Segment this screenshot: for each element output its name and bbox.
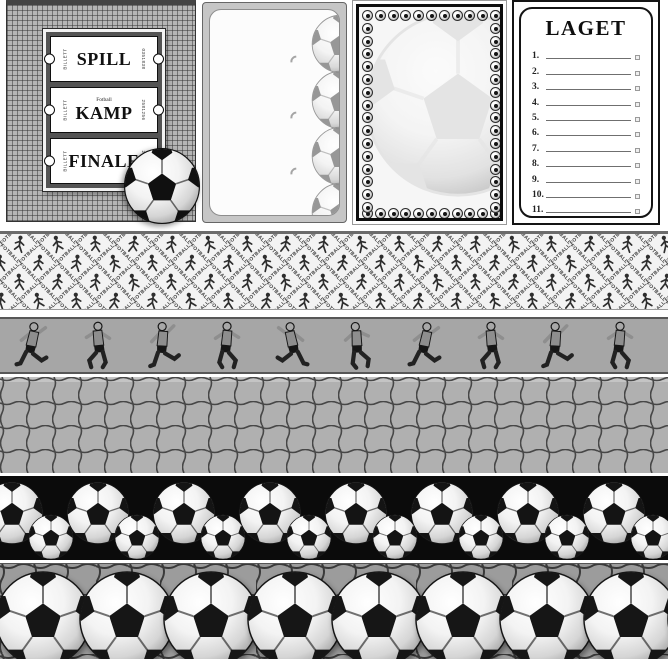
- lattice-player-icon: [295, 291, 312, 310]
- bead-icon: [362, 138, 373, 149]
- laget-row-line: [546, 183, 631, 198]
- soccer-ball-icon: [200, 514, 246, 560]
- soccer-ball-icon: [114, 514, 160, 560]
- edge-soccer-ball-icon: [311, 182, 340, 216]
- laget-row-line: [546, 106, 631, 121]
- soccer-player-icon: [529, 318, 582, 374]
- bead-icon: [362, 151, 373, 162]
- scrapbook-sheet: SPILLBILLETT0351838FotballKAMPBILLETT258…: [0, 0, 668, 659]
- soccer-player-icon: [136, 318, 189, 374]
- bead-icon: [490, 10, 501, 21]
- bead-icon: [362, 48, 373, 59]
- ticket-notch-left: [44, 156, 55, 167]
- ticket-label: SPILL: [77, 50, 132, 68]
- soccer-ball-icon: [544, 514, 590, 560]
- bead-icon: [426, 10, 437, 21]
- ticket-label: KAMP: [76, 104, 133, 122]
- bead-icon: [388, 10, 399, 21]
- lattice-player-icon: [68, 291, 85, 310]
- frame-card-inner: [356, 4, 503, 221]
- lattice-player-icon: [143, 291, 160, 310]
- panel-tickets: SPILLBILLETT0351838FotballKAMPBILLETT258…: [6, 0, 196, 222]
- journal-card-inner: [209, 9, 340, 216]
- bead-icon: [490, 151, 501, 162]
- panel-laget-card: LAGET 1.2.3.4.5.6.7.8.9.10.11.: [512, 0, 660, 225]
- soccer-player-icon: [8, 321, 54, 371]
- edge-soccer-ball-icon: [311, 70, 340, 130]
- soccer-ball-icon: [28, 514, 74, 560]
- ticket-serial-number: 0351838: [140, 48, 145, 69]
- strip-lattice: FOTBALLFOTBALLFOTBALLFOTBALLFOTBALLFOTBA…: [0, 231, 668, 310]
- panel-frame-card: [352, 0, 507, 225]
- laget-row-checkbox: [635, 102, 640, 107]
- ticket-notch-right: [153, 105, 164, 116]
- laget-row-checkbox: [635, 194, 640, 199]
- ticket: FotballKAMPBILLETT2581256: [50, 87, 158, 133]
- panel-journal-card: [202, 2, 347, 223]
- laget-row-number: 11.: [532, 205, 546, 215]
- strip-players: [0, 317, 668, 374]
- bead-icon: [490, 202, 501, 213]
- laget-row-line: [546, 44, 631, 59]
- bead-icon: [362, 176, 373, 187]
- laget-row-number: 4.: [532, 98, 546, 108]
- motion-swoosh: [288, 165, 308, 185]
- soccer-player-icon: [467, 321, 513, 371]
- bead-icon: [362, 10, 373, 21]
- strip-balls-black: [0, 476, 668, 560]
- ticket-serial-number: 2581256: [140, 99, 145, 120]
- laget-row: 11.: [532, 200, 640, 215]
- bead-icon: [439, 208, 450, 219]
- laget-row-checkbox: [635, 86, 640, 91]
- bead-icon: [413, 10, 424, 21]
- bead-icon: [362, 100, 373, 111]
- laget-row-line: [546, 198, 631, 213]
- laget-row-number: 8.: [532, 159, 546, 169]
- bead-icon: [375, 208, 386, 219]
- laget-row-line: [546, 59, 631, 74]
- lattice-player-icon: [220, 291, 237, 310]
- laget-row-number: 2.: [532, 67, 546, 77]
- laget-row-line: [546, 121, 631, 136]
- soccer-player-icon: [332, 318, 385, 374]
- bead-icon: [388, 208, 399, 219]
- soccer-player-icon: [270, 321, 316, 371]
- bead-icon: [490, 87, 501, 98]
- bead-icon: [362, 61, 373, 72]
- bead-icon: [362, 125, 373, 136]
- bead-icon: [413, 208, 424, 219]
- soccer-ball-icon: [286, 514, 332, 560]
- bead-icon: [362, 87, 373, 98]
- ticket-side-left-label: BILLETT: [63, 99, 68, 120]
- laget-row-number: 3.: [532, 82, 546, 92]
- bead-icon: [464, 208, 475, 219]
- edge-soccer-ball-icon: [311, 126, 340, 186]
- bead-icon: [452, 10, 463, 21]
- bead-icon: [362, 189, 373, 200]
- laget-row-checkbox: [635, 179, 640, 184]
- bead-icon: [362, 202, 373, 213]
- laget-row-checkbox: [635, 148, 640, 153]
- laget-row-checkbox: [635, 71, 640, 76]
- soccer-ball-icon: [582, 570, 668, 659]
- bead-icon: [439, 10, 450, 21]
- laget-row-number: 9.: [532, 175, 546, 185]
- laget-row-checkbox: [635, 132, 640, 137]
- soccer-player-icon: [74, 321, 120, 371]
- laget-row-line: [546, 136, 631, 151]
- bead-icon: [362, 164, 373, 175]
- bead-icon: [400, 208, 411, 219]
- bead-icon: [477, 10, 488, 21]
- bead-icon: [490, 74, 501, 85]
- ticket-notch-left: [44, 105, 55, 116]
- strip-net: [0, 377, 668, 473]
- laget-row-number: 5.: [532, 113, 546, 123]
- laget-row-checkbox: [635, 117, 640, 122]
- laget-row-line: [546, 90, 631, 105]
- ticket-side-left-label: BILLETT: [63, 48, 68, 69]
- bead-icon: [490, 36, 501, 47]
- soccer-ball-icon: [630, 514, 668, 560]
- ticket-notch-right: [153, 54, 164, 65]
- ticket-side-left-label: BILLETT: [63, 150, 68, 171]
- lattice-player-icon: [599, 291, 616, 310]
- laget-row-line: [546, 75, 631, 90]
- bead-icon: [452, 208, 463, 219]
- bead-icon: [400, 10, 411, 21]
- ticket-notch-left: [44, 54, 55, 65]
- laget-row-checkbox: [635, 209, 640, 214]
- strip-balls-large: [0, 563, 668, 659]
- bead-icon: [362, 112, 373, 123]
- bead-icon: [477, 208, 488, 219]
- bead-icon: [362, 74, 373, 85]
- bead-icon: [490, 164, 501, 175]
- soccer-ball-icon: [458, 514, 504, 560]
- bead-icon: [362, 36, 373, 47]
- laget-row-number: 6.: [532, 128, 546, 138]
- bead-border: [362, 10, 497, 215]
- soccer-ball-icon: [123, 147, 201, 225]
- laget-title: LAGET: [532, 16, 640, 41]
- soccer-player-icon: [401, 321, 447, 371]
- bead-icon: [464, 10, 475, 21]
- laget-row-number: 1.: [532, 51, 546, 61]
- bead-icon: [375, 10, 386, 21]
- lattice-player-icon: [372, 291, 389, 310]
- soccer-player-icon: [598, 321, 644, 371]
- laget-row-checkbox: [635, 55, 640, 60]
- lattice-player-icon: [524, 291, 541, 310]
- bead-icon: [490, 23, 501, 34]
- motion-swoosh: [288, 109, 308, 129]
- bead-icon: [490, 100, 501, 111]
- ticket: SPILLBILLETT0351838: [50, 36, 158, 82]
- soccer-ball-icon: [372, 514, 418, 560]
- laget-row-line: [546, 167, 631, 182]
- soccer-player-icon: [205, 321, 251, 371]
- laget-row-line: [546, 152, 631, 167]
- bead-icon: [362, 23, 373, 34]
- bead-icon: [426, 208, 437, 219]
- laget-card-inner: LAGET 1.2.3.4.5.6.7.8.9.10.11.: [519, 7, 653, 218]
- bead-icon: [490, 138, 501, 149]
- laget-row-number: 7.: [532, 144, 546, 154]
- edge-soccer-ball-icon: [311, 14, 340, 74]
- laget-row-checkbox: [635, 163, 640, 168]
- goal-net-pattern: [0, 377, 668, 473]
- laget-row-number: 10.: [532, 190, 546, 200]
- laget-rows: 1.2.3.4.5.6.7.8.9.10.11.: [532, 46, 640, 215]
- lattice-player-icon: [447, 291, 464, 310]
- motion-swoosh: [288, 53, 308, 73]
